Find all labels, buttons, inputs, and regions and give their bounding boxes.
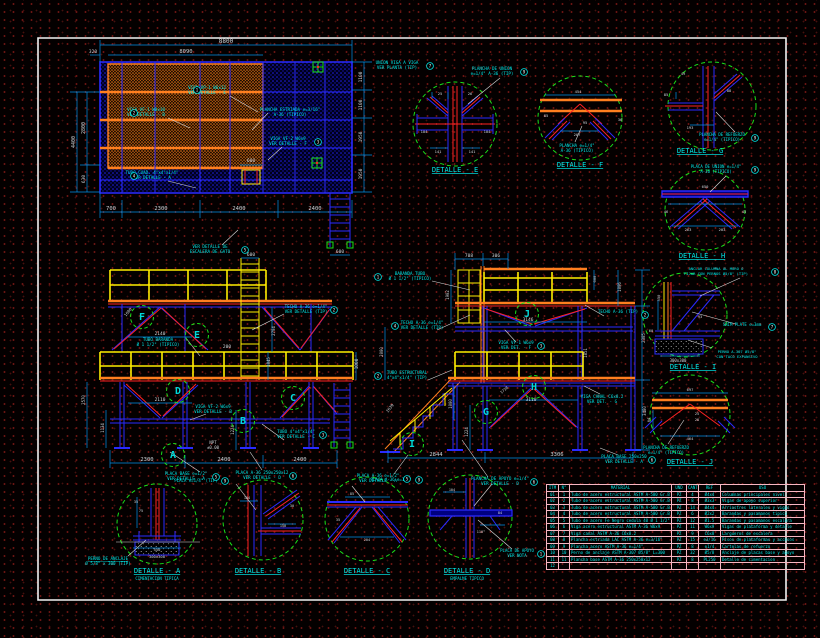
- cad-text-9: 1950: [358, 168, 364, 179]
- cad-text-56: A-36 (TIPICO): [700, 169, 731, 174]
- cad-text-141: VER DETALLE - D: [481, 481, 519, 486]
- cad-text-38: 141: [469, 149, 477, 154]
- detail-h-title: DETALLE - H: [679, 252, 725, 260]
- detail-i-title: DETALLE - I: [670, 363, 716, 371]
- cad-text-43: 36: [618, 117, 623, 122]
- cad-text-64: FIJAR CON PERNOS Ø5/8" (TIP): [684, 271, 748, 276]
- cad-text-124: 3306: [550, 452, 563, 458]
- detail-d: [428, 475, 512, 559]
- cad-text-128: VER DETALLE (TIP): [401, 325, 444, 330]
- cad-text-133: TECHO A-36 (TIP): [598, 309, 638, 314]
- cad-text-152: 75: [139, 509, 143, 513]
- cad-text-21: A-36 (TIPICO): [274, 112, 307, 117]
- cad-text-116: 1851: [583, 348, 588, 358]
- cad-text-65: SHIM PLATE e=3mm: [723, 322, 762, 327]
- cad-text-79: 28: [695, 418, 699, 422]
- cad-text-46: 207: [574, 132, 581, 137]
- left-elevation: [87, 258, 356, 472]
- cad-text-81: 1600: [123, 306, 133, 317]
- table-cell: Plancha estriada LAC ASTM A-36 e=3/16": [570, 537, 672, 544]
- cad-text-162: 84: [498, 511, 502, 515]
- cad-text-150: 550: [154, 547, 162, 552]
- cad-text-32: e=1/4" A-36 (TIP): [471, 71, 514, 76]
- cad-text-84: 2704: [271, 326, 276, 336]
- cad-text-102: 2400: [217, 457, 230, 463]
- cad-text-34: 26: [468, 91, 473, 96]
- cad-text-23: VER DETALLE - F: [269, 141, 307, 146]
- cad-text-29: VER PLANTA (TIP): [377, 65, 417, 70]
- cad-text-90: VER DETALLE (TIP): [285, 309, 328, 314]
- detail-d-title: DETALLE - D: [444, 567, 490, 575]
- cad-text-109: 306: [492, 253, 500, 259]
- cad-text-155: 150: [280, 524, 286, 528]
- cad-text-93: 1134: [100, 423, 105, 433]
- cad-text-117: 3480: [642, 406, 647, 416]
- left-elev-dims: [87, 258, 356, 468]
- cad-text-45: 95: [583, 120, 588, 125]
- top-guardrail: [484, 272, 587, 303]
- cad-text-11: 2300: [154, 206, 167, 212]
- table-cell: 12: [547, 563, 559, 570]
- detail-i: [643, 273, 740, 357]
- table-cell: [672, 563, 687, 570]
- cad-text-44: 85: [544, 113, 549, 118]
- cad-text-159: 35: [336, 518, 340, 522]
- cad-text-33: 25: [438, 91, 443, 96]
- cad-text-12: 2400: [232, 206, 245, 212]
- cad-text-52: 88: [727, 88, 732, 93]
- cad-text-96: VER DETALLE - B: [194, 409, 232, 414]
- materials-table: ITMN°MATERIALUNDCANTREFUSO 011Tubo de ac…: [546, 484, 805, 570]
- cad-text-160: 104: [449, 488, 455, 492]
- cad-text-59: 45: [742, 209, 747, 214]
- cad-text-115: 2305: [641, 333, 646, 343]
- stair: [380, 378, 460, 453]
- table-cell: Tubo de acero estructural ASTM A-500 Gr.…: [570, 491, 672, 498]
- table-cell: Barandas y pasamanos escalera: [721, 517, 805, 524]
- axis-letter-G: G: [483, 407, 489, 418]
- axis-letter-A: A: [170, 450, 176, 461]
- table-cell: Pisos de plataformas y accesos: [721, 537, 805, 544]
- table-header-cell: CANT: [687, 485, 699, 492]
- cad-text-50: 49: [681, 71, 686, 76]
- cad-text-1: 8090: [179, 49, 192, 55]
- cad-text-163: PLACA e=1/4" (TIP): [174, 478, 217, 483]
- cad-text-3: 2800: [81, 122, 87, 134]
- cad-text-113: 600: [592, 275, 597, 283]
- cad-text-7: 1100: [358, 99, 364, 110]
- table-cell: Perno de anclaje ASTM A-307 Ø5/8" L=300: [570, 550, 672, 557]
- cad-text-143: CIMENTACION TIPICA: [135, 576, 179, 581]
- cad-text-111: 2000: [379, 347, 384, 357]
- cad-text-154: 104: [244, 496, 250, 500]
- cad-text-83: 200: [223, 344, 231, 350]
- detail-c-title: DETALLE - C: [344, 567, 390, 575]
- cad-text-74: e=1/4" (TIPICO): [648, 450, 684, 455]
- cad-text-147: EMPALME TIPICO: [450, 576, 484, 581]
- axis-letter-E: E: [194, 330, 200, 341]
- cad-text-51: 85: [664, 92, 669, 97]
- table-cell: Tubo de acero estructural ASTM A-500 Gr.…: [570, 511, 672, 518]
- cad-text-149: Ø 5/8" x 300 (TIP): [85, 561, 130, 566]
- cad-text-75: 697: [687, 387, 694, 392]
- detail-e: [413, 78, 500, 166]
- cad-text-98: VER DETALLE - C: [277, 434, 315, 439]
- cad-text-42: 454: [575, 89, 583, 94]
- cad-text-120: 1000: [448, 399, 453, 409]
- plan-ladder: [327, 193, 353, 248]
- plan-dim-overall: 8800: [219, 38, 234, 45]
- table-cell: [721, 563, 805, 570]
- axis-letter-F: F: [139, 312, 145, 323]
- axis-letter-H: H: [531, 382, 537, 393]
- table-cell: [559, 563, 570, 570]
- cad-text-108: 708: [465, 253, 473, 259]
- mid-guardrail: [100, 352, 353, 380]
- cad-text-13: 2400: [308, 206, 321, 212]
- right-elevation: [380, 253, 650, 477]
- ladder-tower: [241, 258, 259, 380]
- detail-a-title: DETALLE - A: [134, 567, 181, 575]
- cad-text-110: 1902: [445, 290, 450, 300]
- table-cell: [570, 563, 672, 570]
- detail-j-title: DETALLE - J: [667, 458, 713, 466]
- cad-text-60: 263: [685, 227, 692, 232]
- cad-text-153: 35: [134, 500, 138, 504]
- cad-text-114: 1006: [617, 282, 622, 292]
- cad-text-101: 2300: [140, 457, 153, 463]
- lower-ladder: [331, 383, 353, 448]
- cad-text-61: 203: [719, 227, 726, 232]
- detail-h: [662, 170, 748, 250]
- cad-text-41: A-36 (TIPICO): [561, 148, 594, 153]
- cad-text-166: VER NOTA: [507, 553, 527, 558]
- cad-text-78: 25: [695, 412, 699, 416]
- cad-text-76: 464: [687, 436, 695, 441]
- cad-text-107: VER DETALLE - D: [243, 475, 281, 480]
- table-row: 12: [547, 563, 805, 570]
- table-cell: Tubo de acero estructural ASTM A-500 Gr.…: [570, 504, 672, 511]
- cad-text-71: 60: [649, 328, 654, 333]
- cad-text-27: ESCALERA DE GATO: [190, 249, 231, 254]
- table-cell: Anclaje de placas base y apoyo: [721, 550, 805, 557]
- top-cage: [458, 270, 480, 323]
- cad-text-161: 110°: [477, 530, 485, 534]
- cad-text-103: 2400: [293, 457, 306, 463]
- detail-b: [223, 480, 303, 560]
- cad-text-77: 64: [646, 417, 651, 422]
- cad-text-130: 4"x4"x1/4" (TIP): [387, 375, 427, 380]
- cad-text-53: 193: [687, 125, 694, 130]
- cad-text-5: 630: [81, 175, 87, 183]
- cad-text-88: Ø 1 1/2" (TIPICO): [137, 342, 180, 347]
- cad-text-37: 141: [435, 149, 443, 154]
- cad-text-126: Ø 1 1/2" (TIPICO): [389, 276, 432, 281]
- detail-a: [116, 484, 200, 564]
- cad-text-36: 104: [484, 129, 492, 134]
- axis-letter-C: C: [290, 393, 296, 404]
- cad-text-14: 600: [247, 158, 255, 164]
- table-cell: Tubo de acero estructural ASTM A-500 Gr.…: [570, 498, 672, 505]
- detail-e-title: DETALLE - E: [432, 166, 478, 174]
- cad-text-91: 2570: [81, 395, 86, 405]
- cad-text-158: 204: [364, 538, 370, 542]
- cad-text-67: CON TACO EXPANSIVO: [716, 354, 758, 359]
- cad-text-68: 300x300: [670, 358, 687, 363]
- table-cell: [699, 563, 721, 570]
- detail-f-title: DETALLE - F: [557, 161, 603, 169]
- cad-text-69: 350: [656, 294, 661, 302]
- cad-text-49: e=1/4" (TIPICO): [704, 137, 740, 142]
- cad-text-35: 104: [421, 129, 429, 134]
- cad-text-135: VER DET. - G: [587, 399, 618, 404]
- cad-text-25: VER DETALLE - A: [133, 175, 171, 180]
- axis-letter-D: D: [175, 386, 181, 397]
- detail-b-title: DETALLE - B: [235, 567, 281, 575]
- cad-text-92: 2110: [155, 397, 166, 403]
- cad-text-57: 650: [702, 184, 710, 189]
- cad-text-123: 2844: [429, 452, 443, 458]
- cad-sheet: 8800809032028004400630110011001950195070…: [0, 0, 820, 638]
- table-cell: Viga acero estructural ASTM A-36 W6x9: [570, 524, 672, 531]
- cad-text-15: 600: [336, 249, 344, 255]
- cad-text-121: 1224: [464, 427, 469, 437]
- axis-letter-B: B: [240, 416, 246, 427]
- detail-g-title: DETALLE - G: [677, 147, 723, 155]
- cad-text-8: 1950: [358, 131, 364, 142]
- cad-text-86: 1000: [354, 358, 360, 369]
- cad-text-100: ±0.00: [207, 445, 220, 450]
- cad-text-156: 30: [290, 504, 294, 508]
- cad-text-85: 1845: [266, 357, 271, 367]
- cad-text-10: 700: [106, 206, 116, 212]
- cad-text-157: 85: [350, 492, 354, 496]
- table-cell: Tubo de acero Fe Negro cedula 40 Ø 1 1/2…: [570, 517, 672, 524]
- cad-text-70: 93: [698, 314, 703, 319]
- mid-guardrail-right: [455, 352, 583, 380]
- plan-view: [70, 40, 372, 255]
- cad-text-80: 600: [247, 252, 255, 258]
- axis-letter-I: I: [409, 439, 415, 450]
- cad-text-132: VER DET. - F: [501, 345, 532, 350]
- cad-text-2: 320: [89, 49, 97, 55]
- cad-text-58: 46: [664, 209, 669, 214]
- cad-text-151: 300x300: [149, 554, 166, 559]
- cad-text-137: VER DETALLE - A: [605, 459, 643, 464]
- table-cell: [687, 563, 699, 570]
- cad-text-6: 1100: [358, 71, 364, 82]
- cad-text-4: 4400: [71, 136, 77, 148]
- axis-letter-J: J: [524, 309, 530, 320]
- cad-text-112: 2639: [385, 402, 395, 413]
